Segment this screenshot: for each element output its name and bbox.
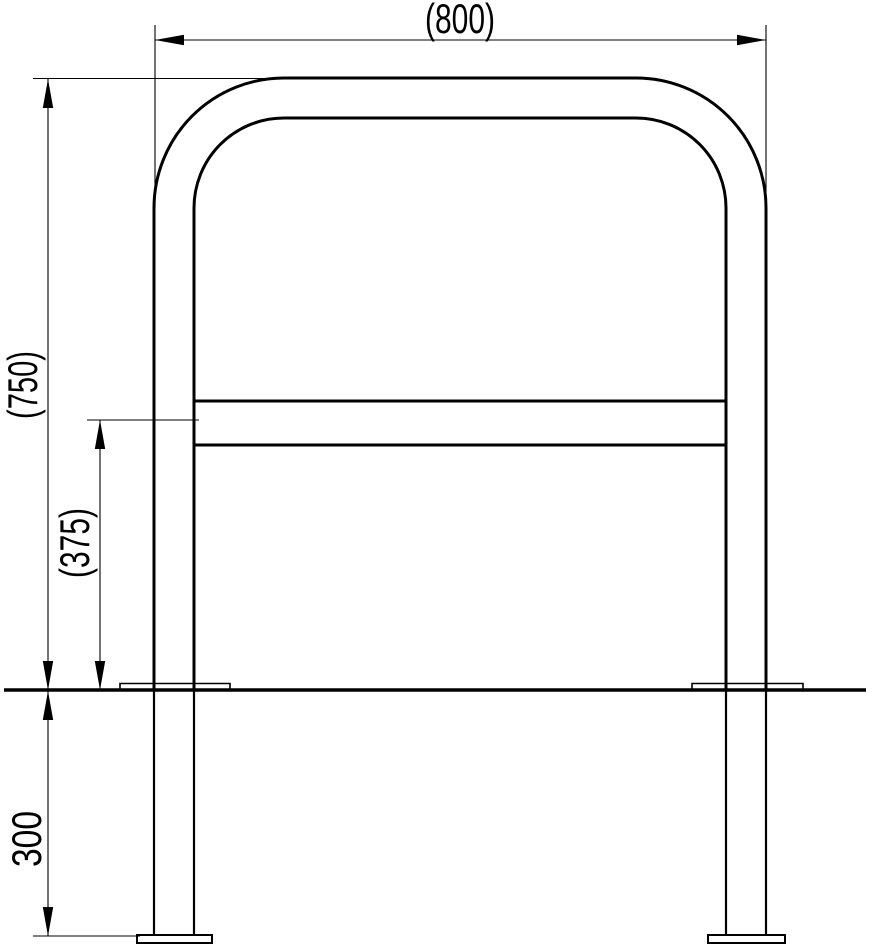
arrowhead-top [95,420,105,449]
anchor-foot-right [708,935,785,943]
anchor-feet [137,935,785,943]
arrowhead-bottom [95,661,105,690]
dimension-crossbar-height: (375) [51,420,199,690]
dimension-overall-height: (750) [0,79,286,691]
anchor-foot-left [137,935,212,943]
overall-height-label: (750) [0,351,46,419]
dimension-embed-depth: 300 [3,690,140,936]
arrowhead-top [43,691,53,720]
embed-depth-label: 300 [3,811,50,867]
crossbar-height-label: (375) [51,508,98,578]
hoop-barrier-drawing: (800) (750) (375) 300 [0,0,876,950]
embedded-posts [154,690,766,935]
hoop-frame [154,78,766,690]
arrowhead-right [737,35,766,45]
crossbar [194,401,726,445]
dimension-overall-width: (800) [155,0,766,207]
arrowhead-top [43,79,53,108]
arrowhead-left [155,35,184,45]
frame-inner-outline [194,118,726,690]
overall-width-label: (800) [425,0,495,42]
frame-outer-outline [154,78,766,690]
arrowhead-bottom [43,907,53,936]
technical-drawing-canvas: (800) (750) (375) 300 [0,0,876,950]
arrowhead-bottom [43,661,53,690]
